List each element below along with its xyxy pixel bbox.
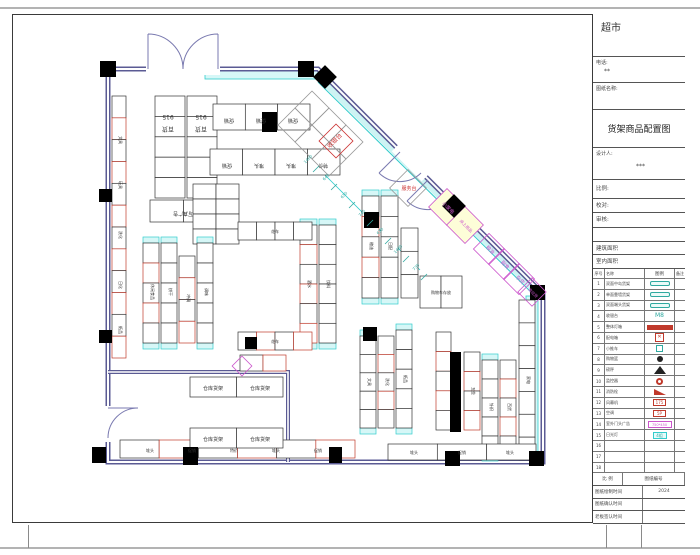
- footer-header: 比 例 图纸编号: [593, 473, 685, 486]
- legend-row: 7 小推车: [593, 344, 685, 355]
- legend-row-no: 7: [593, 344, 605, 354]
- shelf-label: 915: [195, 113, 207, 120]
- shelf-end-cap: [319, 219, 336, 225]
- legend-row-symbol: [645, 365, 675, 375]
- shelf-cell: [396, 408, 412, 428]
- shelf-cell: [482, 379, 498, 398]
- shelf-label: 堆头: [272, 447, 280, 453]
- shelf-cell: [143, 303, 159, 323]
- shelf-cell: [500, 417, 516, 436]
- legend-row-no: 11: [593, 387, 605, 397]
- shelf-end-cap: [396, 428, 412, 434]
- shelf-cell: [396, 350, 412, 370]
- legend-row-name: 小推车: [605, 344, 645, 354]
- legend-row-name: 室外门头广告: [605, 419, 645, 429]
- interior-area-field: 室内面积: [593, 255, 685, 269]
- shelf-label: 休闲食品: [150, 284, 156, 300]
- legend-row-no: 16: [593, 441, 605, 451]
- shelf-cell: [300, 245, 317, 265]
- shelf-cell: [112, 293, 126, 315]
- legend-row-symbol: [645, 452, 675, 462]
- legend-row-name: 风幕机: [605, 398, 645, 408]
- legend-row-name: 双面端头货架: [605, 301, 645, 311]
- legend-row-symbol: M8: [645, 311, 675, 321]
- shelf-cell: [519, 414, 535, 437]
- blank-field: [593, 228, 685, 242]
- footer-row-value: 2024: [643, 486, 685, 498]
- footer-header-scale: 比 例: [593, 473, 623, 485]
- scale-field: 比例:: [593, 180, 685, 199]
- legend-row-no: 8: [593, 355, 605, 365]
- shelf-label: 调味: [204, 288, 210, 296]
- shelf-cell: [112, 249, 126, 271]
- shelf-end-cap: [360, 428, 376, 434]
- structural-column: [245, 337, 257, 349]
- structural-column: [364, 212, 379, 228]
- legend-row: 18: [593, 463, 685, 474]
- legend-header: 序号 名称 图例 备注: [593, 269, 685, 279]
- structural-column: [92, 447, 106, 463]
- shelf-cell: [396, 389, 412, 409]
- shelf-end-cap: [362, 298, 379, 304]
- legend-row-name: [605, 452, 645, 462]
- shelf-cell: [381, 257, 398, 277]
- footer-row: 图纸确认时间: [593, 499, 685, 512]
- legend-symbol-icon: [647, 325, 673, 330]
- legend-row-note: [675, 430, 685, 440]
- shelf-cell: [161, 323, 177, 343]
- store-name: 超市: [593, 14, 685, 57]
- shelf-label: 洗化: [118, 231, 124, 239]
- legend-row-name: 收银台: [605, 311, 645, 321]
- shelf-cell: [112, 205, 126, 227]
- shelf-cell: [360, 391, 376, 409]
- legend-row-symbol: 750*450: [645, 419, 675, 429]
- legend-symbol-icon: [654, 366, 666, 374]
- legend-row: 6 配电箱 ✕: [593, 333, 685, 344]
- legend-row-name: [605, 441, 645, 451]
- shelf-label: 堆头: [146, 447, 154, 453]
- legend-row-note: [675, 365, 685, 375]
- legend-row-note: [675, 301, 685, 311]
- footer-header-sheetno: 图纸编号: [623, 473, 685, 485]
- legend-row-no: 5: [593, 322, 605, 332]
- legend-row-no: 15: [593, 430, 605, 440]
- legend-row-name: 双面中岛货架: [605, 279, 645, 289]
- shelf-cell: [216, 184, 239, 199]
- shelf-cell: [197, 303, 213, 323]
- drawing-name-field: 图纸名称:: [593, 83, 685, 110]
- shelf-cell: [161, 243, 177, 263]
- shelf-label: 促销: [188, 447, 196, 453]
- shelf-label: 家电: [526, 376, 532, 384]
- legend-row-no: 3: [593, 301, 605, 311]
- legend-row-note: [675, 452, 685, 462]
- shelf-cell: [519, 323, 535, 346]
- shelf-cell: [378, 410, 394, 428]
- legend-symbol-icon: [656, 378, 663, 385]
- shelf-cell: [436, 410, 451, 430]
- drawing-sheet: 915百货915百货写真广告促销促销促销促销堆头堆头特价收银台服务台小家电床上用…: [0, 0, 700, 555]
- legend-row-symbol: [645, 376, 675, 386]
- footer-row-value: [643, 511, 685, 523]
- legend-row-name: 购物篮: [605, 355, 645, 365]
- shelf-label: 冲调: [186, 294, 192, 302]
- shelf-end-cap: [396, 324, 412, 330]
- shelf-cell: [193, 214, 216, 229]
- shelf-cell: [396, 330, 412, 350]
- legend-row-symbol: 175: [645, 398, 675, 408]
- shelf-cell: [436, 371, 451, 391]
- shelf-cell: [436, 352, 451, 372]
- legend-symbol-icon: [654, 389, 666, 395]
- legend-row: 11 消防栓: [593, 387, 685, 398]
- legend-row-no: 17: [593, 452, 605, 462]
- building-area-field: 建筑面积: [593, 242, 685, 255]
- shelf-cell: [319, 245, 336, 265]
- shelf-cell: [482, 417, 498, 436]
- shelf-cell: [378, 336, 394, 354]
- footer-row: 老板签认时间: [593, 511, 685, 524]
- legend-row-note: [675, 344, 685, 354]
- shelf-label: 仓库货架: [203, 385, 223, 392]
- drawing-title: 货架商品配置图: [593, 110, 685, 148]
- shelf-cell: [112, 336, 126, 358]
- dimension-text: 650: [339, 190, 348, 199]
- legend-row: 14 室外门头广告 750*450: [593, 419, 685, 430]
- shelf-cell: [436, 391, 451, 411]
- shelf-label: 花车: [271, 228, 279, 234]
- shelf-cell: [360, 354, 376, 372]
- shelf-end-cap: [143, 343, 159, 349]
- shelf-label: 915: [162, 113, 174, 120]
- legend-row: 5 整体灯箱: [593, 322, 685, 333]
- phone-value: **: [604, 68, 685, 75]
- shelf-end-cap: [197, 237, 213, 243]
- legend-row-name: 日光灯: [605, 430, 645, 440]
- legend-symbol-icon: [656, 345, 663, 352]
- legend-row-symbol: [645, 290, 675, 300]
- legend-table: 序号 名称 图例 备注 1 双面中岛货架: [593, 269, 685, 473]
- shelf-end-cap: [319, 343, 336, 349]
- legend-row: 15 日光灯 4组: [593, 430, 685, 441]
- shelf-cell: [143, 263, 159, 283]
- shelf-cell: [216, 199, 239, 214]
- shelf-cell: [216, 229, 239, 244]
- shelf-label: 百货: [507, 403, 513, 411]
- legend-row: 12 风幕机 175: [593, 398, 685, 409]
- shelf-label: 仓库货架: [250, 436, 270, 443]
- shelf-cell: [362, 257, 379, 277]
- check-field: 校对:: [593, 199, 685, 213]
- legend-header-name: 名称: [605, 269, 645, 278]
- shelf-cell: [381, 278, 398, 298]
- legend-row: 13 空调 5P: [593, 409, 685, 420]
- shelf-cell: [197, 323, 213, 343]
- shelf-cell: [193, 184, 216, 199]
- footer-rows: 图纸绘制时间 2024 图纸确认时间 老板签认时间: [593, 486, 685, 524]
- legend-row-name: 空调: [605, 409, 645, 419]
- legend-symbol-icon: ✕: [655, 333, 664, 342]
- footer-row-label: 图纸确认时间: [593, 499, 643, 511]
- phone-field: 电话: **: [593, 57, 685, 83]
- dimension-tick: [349, 202, 355, 208]
- shelf-cell: [193, 199, 216, 214]
- legend-header-no: 序号: [593, 269, 605, 278]
- legend-row-name: 整体灯箱: [605, 322, 645, 332]
- shelf-cell: [155, 137, 185, 157]
- legend-row-note: [675, 398, 685, 408]
- shelf-cell: [179, 321, 195, 343]
- shelf-label: 促销: [224, 117, 234, 124]
- shelf-cell: [112, 96, 126, 118]
- legend-row: 17: [593, 452, 685, 463]
- shelf-end-cap: [362, 190, 379, 196]
- shelf-label: 针织: [489, 403, 495, 411]
- shelf-label: 文具: [367, 378, 373, 386]
- shelf-label: 堆头: [286, 162, 296, 169]
- legend-symbol-icon: 175: [653, 399, 666, 406]
- legend-row-no: 9: [593, 365, 605, 375]
- shelf-cell: [500, 379, 516, 398]
- shelf-cell: [197, 243, 213, 263]
- legend-row-no: 14: [593, 419, 605, 429]
- legend-symbol-icon: 4组: [653, 432, 667, 439]
- legend-header-symbol: 图例: [645, 269, 675, 278]
- shelf-label: 百货: [195, 125, 207, 133]
- legend-row-name: 配电箱: [605, 333, 645, 343]
- legend-row-symbol: 4组: [645, 430, 675, 440]
- shelf-cell: [519, 391, 535, 414]
- legend-row-no: 13: [593, 409, 605, 419]
- legend-header-note: 备注: [675, 269, 685, 278]
- shelf-label: 饮料: [326, 280, 332, 288]
- legend-row-name: 消防栓: [605, 387, 645, 397]
- shelf-cell: [278, 104, 310, 130]
- legend-row: 16: [593, 441, 685, 452]
- legend-row-note: [675, 419, 685, 429]
- shelf-label: 仓库货架: [203, 436, 223, 443]
- shelf-label: 纸品: [403, 375, 409, 383]
- shelf-cell: [362, 278, 379, 298]
- legend-row-name: 监控器: [605, 376, 645, 386]
- shelf-label: 写真广告: [173, 210, 193, 217]
- legend-row: 10 监控器: [593, 376, 685, 387]
- shelf-cell: [197, 263, 213, 283]
- shelf-label: 服务台: [401, 185, 416, 192]
- legend-row-note: [675, 279, 685, 289]
- legend-row-note: [675, 387, 685, 397]
- shelf-cell: [238, 222, 257, 240]
- title-block: 超市 电话: ** 图纸名称: 货架商品配置图 设计人: *** 比例: 校对:…: [592, 14, 685, 523]
- shelf-label: 堆头: [410, 449, 418, 455]
- legend-row-symbol: [645, 322, 675, 332]
- shelf-cell: [519, 300, 535, 323]
- shelf-cell: [143, 243, 159, 263]
- shelf-end-cap: [197, 343, 213, 349]
- legend-row-no: 2: [593, 290, 605, 300]
- shelf-cell: [243, 149, 276, 175]
- shelf-cell: [155, 178, 185, 198]
- structural-column: [450, 352, 461, 432]
- shelf-label: 纸品: [118, 326, 124, 334]
- shelf-cell: [143, 323, 159, 343]
- shelf-end-cap: [143, 237, 159, 243]
- shelf-end-cap: [381, 190, 398, 196]
- shelf-label: 文具: [118, 136, 124, 144]
- legend-row-no: 12: [593, 398, 605, 408]
- shelf-label: 日配: [388, 242, 393, 250]
- shelf-label: 特价: [318, 162, 328, 169]
- legend-row-note: [675, 409, 685, 419]
- shelf-cell: [294, 222, 313, 240]
- shelf-label: 促销: [288, 117, 298, 124]
- shelf-label: 洗化: [385, 378, 391, 386]
- shelf-cell: [179, 256, 195, 278]
- legend-symbol-icon: 5P: [653, 410, 666, 417]
- shelf-cell: [263, 355, 286, 371]
- shelf-cell: [213, 104, 245, 130]
- legend-rows: 1 双面中岛货架 2 单面靠墙货架: [593, 279, 685, 473]
- structural-column: [329, 447, 342, 463]
- shelf-cell: [464, 352, 480, 372]
- shelf-cell: [519, 346, 535, 369]
- shelf-end-cap: [161, 237, 177, 243]
- shelf-cell: [294, 332, 313, 350]
- shelf-label: 促销: [314, 447, 322, 453]
- drawing-name-label: 图纸名称:: [596, 86, 618, 92]
- shelf-label: 百货: [162, 125, 174, 133]
- shelf-label: 仓库货架: [250, 385, 270, 392]
- shelf-label: 特价: [230, 447, 238, 453]
- footer-row-value: [643, 499, 685, 511]
- shelf-cell: [161, 263, 177, 283]
- legend-row-name: 单面靠墙货架: [605, 290, 645, 300]
- shelf-cell: [161, 303, 177, 323]
- shelf-label: 五金: [471, 387, 477, 395]
- legend-row: 3 双面端头货架: [593, 301, 685, 312]
- legend-row-note: [675, 376, 685, 386]
- audit-field: 审核:: [593, 213, 685, 228]
- shelf-cell: [482, 360, 498, 379]
- legend-row-no: 10: [593, 376, 605, 386]
- legend-row-symbol: [645, 344, 675, 354]
- shelf-cell: [464, 411, 480, 431]
- shelf-label: 粮油: [369, 242, 375, 250]
- legend-row-no: 4: [593, 311, 605, 321]
- structural-column: [100, 61, 116, 77]
- shelf-label: 饼干: [168, 288, 174, 296]
- structural-column: [363, 327, 377, 341]
- structural-column: [529, 451, 544, 466]
- shelf-cell: [319, 225, 336, 245]
- designer-value: ***: [596, 163, 685, 170]
- shelf-cell: [300, 304, 317, 324]
- shelf-cell: [319, 304, 336, 324]
- designer-field: 设计人: ***: [593, 148, 685, 180]
- legend-row: 4 收银台 M8: [593, 311, 685, 322]
- legend-row-symbol: [645, 355, 675, 365]
- shelf-end-cap: [381, 298, 398, 304]
- designer-label: 设计人:: [596, 151, 613, 157]
- legend-row-no: 6: [593, 333, 605, 343]
- footer-row: 图纸绘制时间 2024: [593, 486, 685, 499]
- legend-row-note: [675, 290, 685, 300]
- legend-row-note: [675, 441, 685, 451]
- shelf-label: 日化: [118, 281, 124, 289]
- legend-row-note: [675, 322, 685, 332]
- shelf-cell: [210, 149, 243, 175]
- structural-column: [298, 61, 314, 77]
- legend-row: 9 磅秤: [593, 365, 685, 376]
- shelf-cell: [216, 214, 239, 229]
- legend-symbol-icon: [657, 356, 663, 362]
- legend-row-symbol: [645, 441, 675, 451]
- legend-row-note: [675, 355, 685, 365]
- phone-label: 电话:: [596, 60, 608, 66]
- shelf-cell: [500, 360, 516, 379]
- legend-row-symbol: 5P: [645, 409, 675, 419]
- legend-row: 2 单面靠墙货架: [593, 290, 685, 301]
- dimension-tick: [331, 184, 337, 190]
- shelf-label: 堆头: [254, 162, 264, 169]
- legend-row-symbol: ✕: [645, 333, 675, 343]
- structural-column: [99, 330, 112, 343]
- legend-symbol-icon: [650, 281, 670, 286]
- shelf-label: 促销: [222, 162, 232, 169]
- shelf-cell: [378, 354, 394, 372]
- shelf-label: 玩具: [118, 181, 124, 189]
- legend-row-no: 1: [593, 279, 605, 289]
- legend-row-no: 18: [593, 463, 605, 473]
- shelf-cell: [155, 157, 185, 177]
- shelf-cell: [378, 391, 394, 409]
- shelf-cell: [319, 323, 336, 343]
- legend-row-symbol: [645, 463, 675, 473]
- shelf-cell: [401, 275, 418, 298]
- shelf-cell: [381, 216, 398, 236]
- shelf-end-cap: [482, 354, 498, 360]
- legend-row-symbol: [645, 301, 675, 311]
- legend-symbol-icon: M8: [655, 313, 664, 319]
- legend-row-name: 磅秤: [605, 365, 645, 375]
- shelf-label: 购物车存放: [431, 289, 451, 295]
- legend-symbol-icon: 750*450: [648, 421, 672, 428]
- legend-symbol-icon: [650, 303, 670, 308]
- shelf-label: 促销: [256, 117, 266, 124]
- legend-row-note: [675, 333, 685, 343]
- shelf-cell: [360, 410, 376, 428]
- structural-column: [99, 189, 112, 202]
- shelf-label: 花车: [271, 338, 279, 344]
- shelf-end-cap: [161, 343, 177, 349]
- legend-row-symbol: [645, 387, 675, 397]
- footer-row-label: 老板签认时间: [593, 511, 643, 523]
- legend-row-note: [675, 463, 685, 473]
- legend-row: 8 购物篮: [593, 355, 685, 366]
- legend-row-note: [675, 311, 685, 321]
- footer-row-label: 图纸绘制时间: [593, 486, 643, 498]
- shelf-label: 堆头: [506, 449, 514, 455]
- legend-row-symbol: [645, 279, 675, 289]
- shelf-cell: [436, 332, 451, 352]
- shelf-label: 酒水: [307, 280, 313, 288]
- shelf-label: 促销: [458, 449, 466, 455]
- legend-row: 1 双面中岛货架: [593, 279, 685, 290]
- legend-row-name: [605, 463, 645, 473]
- legend-symbol-icon: [650, 292, 670, 297]
- shelf-cell: [381, 196, 398, 216]
